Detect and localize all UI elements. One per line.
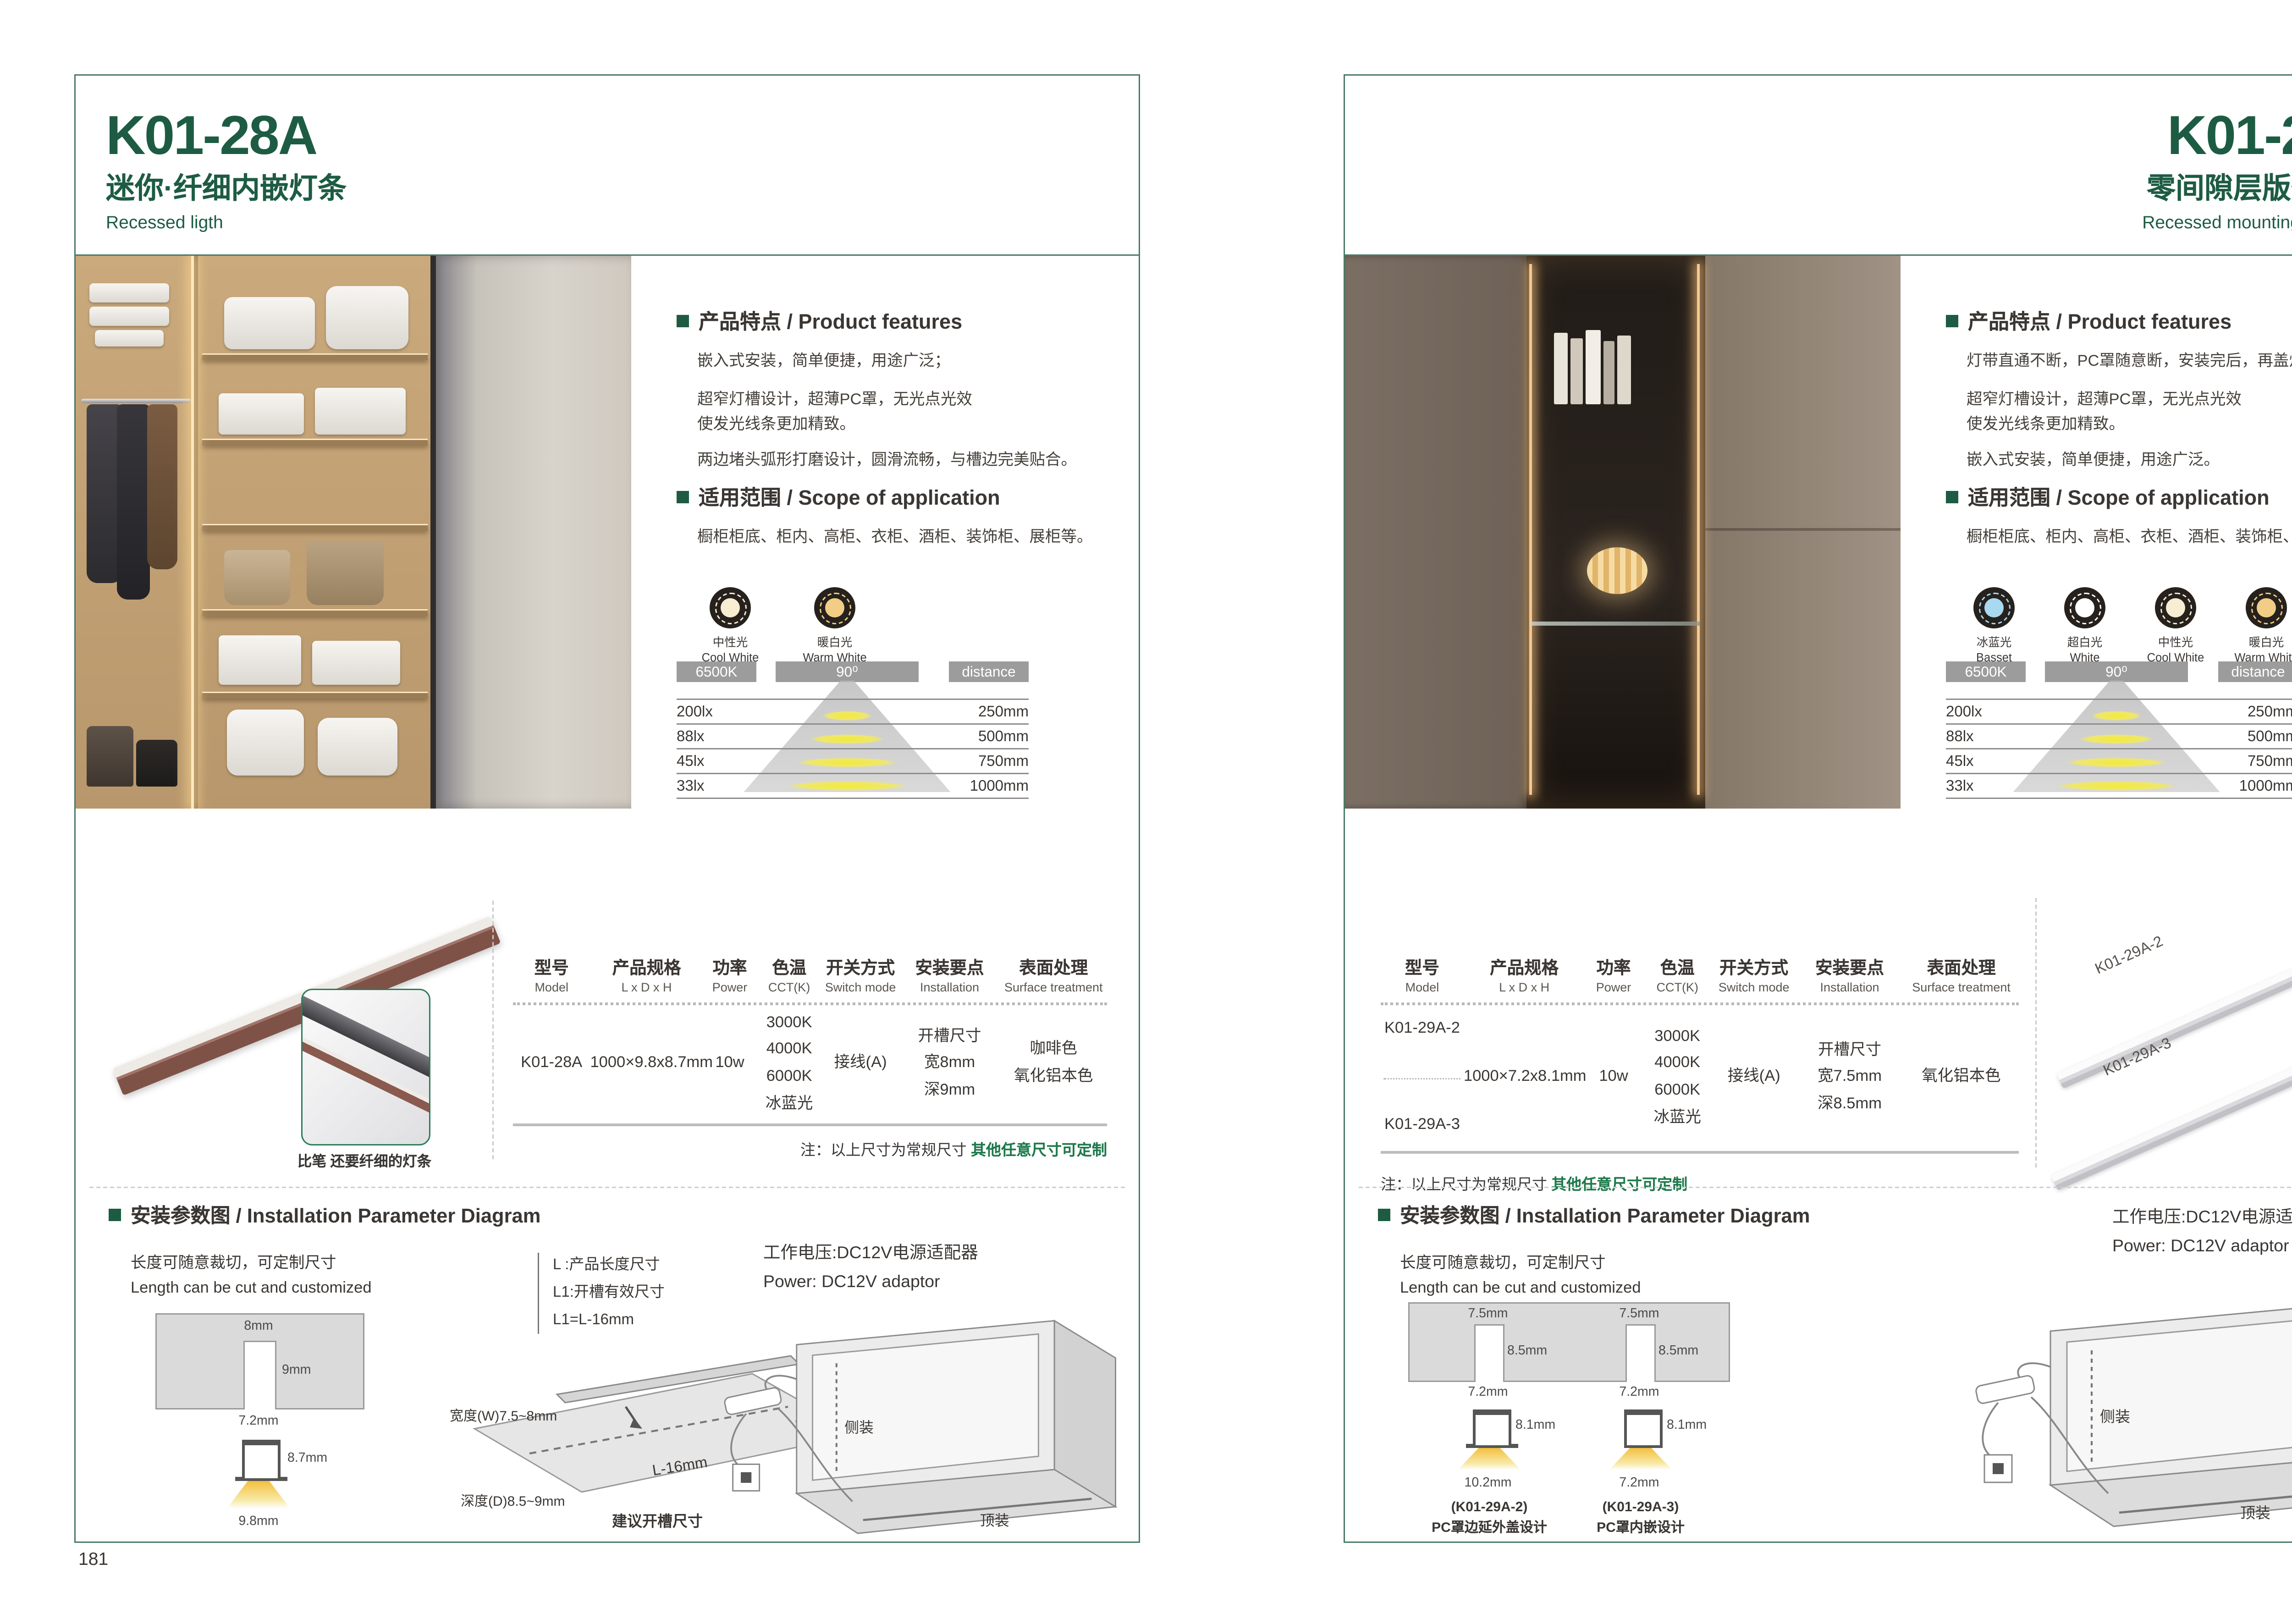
page-title: K01-28A [106, 109, 316, 164]
feature-paragraph: 使发光线条更加精致。 [697, 414, 855, 438]
vertical-divider [2035, 898, 2037, 1167]
lux-row: 88lx500mm [677, 723, 1029, 748]
pleated-lamp [1587, 547, 1647, 594]
spec-table-header: 型号Model 产品规格L x D x H 功率Power 色温CCT(K) 开… [1381, 953, 2019, 1005]
variant-caption: (K01-29A-2) PC罩边延外盖设计 [1414, 1497, 1565, 1539]
cross-section-diagram: 8mm 9mm 7.2mm 8.7mm 9.8mm [144, 1299, 447, 1536]
top-mount-label: 顶装 [980, 1512, 1009, 1529]
subtitle-en: Recessed mounting LED light [2142, 212, 2292, 232]
lux-row: 200lx250mm [1946, 699, 2292, 723]
lux-row: 33lx1000mm [1946, 773, 2292, 798]
product-render: K01-29A-2 K01-29A-3 [2041, 881, 2292, 1176]
dim-slot: 7.2mm [224, 1414, 293, 1429]
subtitle-en: Recessed ligth [106, 212, 223, 232]
spec-table-row: K01-28A 1000×9.8x8.7mm 10w 3000K 4000K 6… [513, 1005, 1107, 1126]
lux-row: 33lx1000mm [677, 773, 1029, 798]
model-separator [1384, 1078, 1460, 1079]
subtitle-cn: 迷你·纤细内嵌灯条 [106, 172, 347, 207]
section-bullet-icon [1946, 491, 1958, 503]
page-181: K01-28A 迷你·纤细内嵌灯条 Recessed ligth [74, 74, 1140, 1543]
page-182: K01-29A 零间隙层版条形灯 Recessed mounting LED l… [1344, 74, 2292, 1543]
lit-cabinet [1526, 256, 1705, 809]
inset-caption: 比笔 还要纤细的灯条 [271, 1151, 458, 1172]
dim-height: 8.7mm [287, 1451, 327, 1466]
spec-table: 型号Model 产品规格L x D x H 功率Power 色温CCT(K) 开… [1381, 953, 2019, 1195]
light-icon-warm-white: 暖白光 Warm White [796, 587, 873, 664]
led-strip-white [2056, 922, 2292, 1089]
spec-note: 注：以上尺寸为常规尺寸 其他任意尺寸可定制 [1381, 1173, 2019, 1195]
installation-title: 安装参数图 / Installation Parameter Diagram [1378, 1200, 1810, 1229]
features-title: 产品特点 / Product features [677, 307, 962, 336]
light-icon-white: 超白光 White [2046, 587, 2123, 664]
page-number-left: 181 [78, 1548, 108, 1569]
glass-shelf [1532, 622, 1700, 626]
feature-paragraph: 超窄灯槽设计，超薄PC罩，无光点光效 [697, 389, 972, 413]
sun-icon [2246, 587, 2287, 628]
section-divider [89, 1187, 1125, 1188]
lux-row: 200lx250mm [677, 699, 1029, 723]
variant-caption: (K01-29A-3) PC罩内嵌设计 [1565, 1497, 1716, 1539]
section-bullet-icon [1946, 315, 1958, 327]
side-mount-label: 侧装 [844, 1419, 874, 1436]
scope-title: 适用范围 / Scope of application [677, 483, 1000, 512]
cross-section-diagram: 7.5mm 7.5mm 8.5mm 8.5mm 7.2mm 7.2mm 8.1m… [1408, 1288, 1793, 1536]
light-icon-cool-white: 中性光 Cool White [692, 587, 769, 664]
feature-paragraph: 灯带直通不断，PC罩随意断，安装完后，再盖灯罩； [1967, 351, 2292, 375]
dim-depth: 9mm [282, 1363, 311, 1378]
scope-text: 橱柜柜底、柜内、高柜、衣柜、酒柜、装饰柜、展柜等。 [697, 527, 1093, 551]
section-bullet-icon [109, 1209, 121, 1221]
page-title: K01-29A [2167, 109, 2292, 164]
sun-icon [2155, 587, 2196, 628]
product-render: 比笔 还要纤细的灯条 [98, 895, 502, 1178]
lux-row: 45lx750mm [1946, 748, 2292, 773]
dimension-legend: L :产品长度尺寸 L1:开槽有效尺寸 L1=L-16mm [538, 1253, 665, 1334]
feature-paragraph: 超窄灯槽设计，超薄PC罩，无光点光效 [1967, 389, 2242, 413]
sun-icon [814, 587, 855, 628]
feature-paragraph: 两边堵头弧形打磨设计，圆滑流畅，与槽边完美贴合。 [697, 450, 1077, 474]
distance-chip: distance [949, 661, 1029, 682]
vertical-divider [492, 901, 494, 1159]
beam-angle-chip: 90⁰ [776, 661, 919, 682]
groove-label-w: 宽度(W)7.5~8mm [450, 1409, 557, 1424]
section-bullet-icon [677, 315, 689, 327]
lux-row: 88lx500mm [1946, 723, 2292, 748]
light-distance-table: 6500K 90⁰ distance 200lx250mm 88lx500mm … [677, 661, 1029, 799]
scope-title: 适用范围 / Scope of application [1946, 483, 2270, 512]
scope-text: 橱柜柜底、柜内、高柜、衣柜、酒柜、装饰柜、展柜等。 [1967, 527, 2292, 551]
feature-paragraph: 嵌入式安装，简单便捷，用途广泛； [697, 351, 950, 375]
power-note: 工作电压:DC12V电源适配器 Power: DC12V adaptor [763, 1239, 978, 1298]
installation-title: 安装参数图 / Installation Parameter Diagram [109, 1200, 540, 1229]
spec-table-row: K01-29A-2 K01-29A-3 1000×7.2x8.1mm 10w 3… [1381, 1005, 2019, 1154]
pen-comparison-inset [301, 989, 430, 1145]
strip-label: K01-29A-2 [2093, 933, 2165, 978]
subtitle-cn: 零间隙层版条形灯 [2147, 172, 2292, 207]
section-divider [1359, 1187, 2292, 1188]
light-icon-cool-white: 中性光 Cool White [2137, 587, 2214, 664]
beam-angle-chip: 90⁰ [2045, 661, 2188, 682]
side-mount-label: 侧装 [2100, 1408, 2130, 1425]
length-note: 长度可随意裁切，可定制尺寸 Length can be cut and cust… [131, 1253, 372, 1302]
dim-bottom: 9.8mm [221, 1514, 296, 1529]
sun-icon [2064, 587, 2105, 628]
cabinet-mounting-diagram: 侧装 顶装 [719, 1299, 1132, 1536]
led-glow-line [1529, 264, 1532, 795]
light-icon-warm-white: 暖白光 Warm White [2228, 587, 2292, 664]
sun-icon [1973, 587, 2015, 628]
spec-table: 型号Model 产品规格L x D x H 功率Power 色温CCT(K) 开… [513, 953, 1107, 1161]
cct-chip: 6500K [677, 661, 756, 682]
feature-paragraph: 嵌入式安装，简单便捷，用途广泛。 [1967, 450, 2220, 474]
light-color-icons: 冰蓝光 Basset 超白光 White 中性光 Cool White 暖白光 … [1956, 587, 2292, 664]
feature-paragraph: 使发光线条更加精致。 [1967, 414, 2125, 438]
sun-icon [710, 587, 751, 628]
section-bullet-icon [677, 491, 689, 503]
groove-caption: 建议开槽尺寸 [612, 1513, 703, 1530]
top-mount-label: 顶装 [2240, 1504, 2270, 1521]
groove-label-d: 深度(D)8.5~9mm [461, 1494, 565, 1509]
distance-chip: distance [2218, 661, 2292, 682]
product-photo-wardrobe [76, 256, 631, 809]
power-note: 工作电压:DC12V电源适配器 Power: DC12V adaptor [2112, 1203, 2292, 1262]
hanging-rod [81, 399, 191, 403]
features-title: 产品特点 / Product features [1946, 307, 2231, 336]
wardrobe-sliding-door [436, 256, 631, 809]
catalog-spread: K01-28A 迷你·纤细内嵌灯条 Recessed ligth [0, 0, 2292, 1624]
cct-chip: 6500K [1946, 661, 2026, 682]
led-glow-line [1697, 264, 1700, 795]
section-bullet-icon [1378, 1209, 1390, 1221]
cabinet-mounting-diagram: 侧装 顶装 [1971, 1283, 2292, 1530]
led-glow-line [191, 256, 194, 809]
spec-table-header: 型号Model 产品规格L x D x H 功率Power 色温CCT(K) 开… [513, 953, 1107, 1005]
light-color-icons: 中性光 Cool White 暖白光 Warm White [692, 587, 873, 664]
light-distance-table: 6500K 90⁰ distance 200lx250mm 88lx500mm … [1946, 661, 2292, 799]
light-icon-ice-blue: 冰蓝光 Basset [1956, 587, 2033, 664]
dim-top: 8mm [224, 1319, 293, 1334]
lux-row: 45lx750mm [677, 748, 1029, 773]
spec-note: 注：以上尺寸为常规尺寸 其他任意尺寸可定制 [513, 1139, 1107, 1161]
product-photo-cabinet [1345, 256, 1901, 809]
